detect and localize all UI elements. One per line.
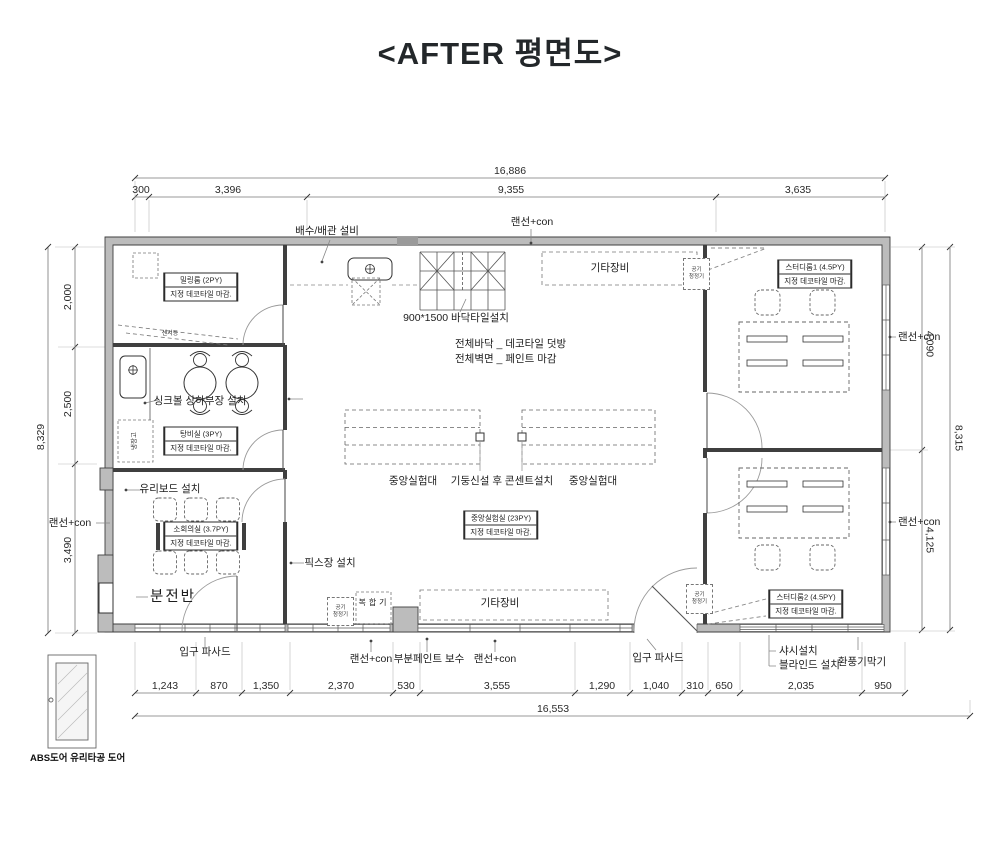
roombox-study2: 스터디룸2 (4.5PY) 지정 데코타일 마감. [768,590,843,619]
air-purifier-box-bottom-right: 공기 청정기 [686,584,713,614]
label-bench-right: 중앙실험대 [569,476,617,487]
air-purifier-box-bottom-left: 공기 청정기 [327,597,354,626]
air-purifier-label: 청정기 [692,599,707,606]
room-finish: 지정 데코타일 마감. [779,275,850,288]
label-abs-door: ABS도어 유리타공 도어 [30,750,125,764]
room-name: 중앙실험실 (23PY) [465,512,536,526]
roombox-milling: 밀링룸 (2PY) 지정 데코타일 마감. [163,273,238,302]
meeting-table-bar [242,523,246,550]
dim-top-total: 16,886 [494,166,526,177]
leader-dots [125,242,892,643]
dim-bottom-1: 870 [210,681,228,692]
dim-bottom-9: 650 [715,681,733,692]
roombox-meeting: 소회의실 (3.7PY) 지정 데코타일 마감. [163,522,238,551]
room-name: 소회의실 (3.7PY) [165,523,236,537]
dim-bottom-7: 1,040 [643,681,669,692]
label-facade-left: 입구 파사드 [179,647,230,658]
room-name: 스터디룸2 (4.5PY) [770,591,841,605]
label-lan-right1: 랜선+con [898,332,940,343]
room-finish: 지정 데코타일 마감. [165,537,236,550]
room-finish: 지정 데코타일 마감. [165,442,236,455]
label-fix: 픽스장 설치 [304,558,355,569]
dim-top-1: 3,396 [215,185,241,196]
abs-door-drawing [48,655,96,748]
dim-top-2: 9,355 [498,185,524,196]
label-blind: 블라인드 설치 [779,660,840,671]
dim-bottom-11: 950 [874,681,892,692]
room-finish: 지정 데코타일 마감. [165,288,236,301]
meeting-table-bar [156,523,160,550]
label-lan-bottom1: 랜선+con [350,654,392,665]
study-furniture [708,248,849,624]
label-drain: 배수/배관 설비 [295,226,359,237]
label-sash: 샤시설치 [779,646,818,657]
dim-bottom-8: 310 [686,681,704,692]
dim-bottom-10: 2,035 [788,681,814,692]
roombox-study1: 스터디룸1 (4.5PY) 지정 데코타일 마감. [777,260,852,289]
air-purifier-label: 청정기 [333,612,348,619]
roombox-pantry: 탕비실 (3PY) 지정 데코타일 마감. [163,427,238,456]
dim-bottom-4: 530 [397,681,415,692]
dim-left-total: 8,329 [36,424,47,450]
label-glassboard: 유리보드 설치 [140,484,201,495]
label-equip-top: 기타장비 [591,263,630,274]
demolition-dashes [708,248,767,624]
dim-right-total: 8,315 [953,425,964,451]
door-handle [49,698,53,702]
entrance-opening [634,624,697,634]
dim-bottom-total: 16,553 [537,704,569,715]
dim-bottom-3: 2,370 [328,681,354,692]
wall-hatch [397,237,418,246]
dim-top-3: 3,635 [785,185,811,196]
label-column: 기둥신설 후 콘센트설치 [451,476,553,487]
label-fridge: 냉장고 [132,432,139,450]
label-lan-top: 랜선+con [511,217,553,228]
column [518,433,526,441]
dim-left-2: 3,490 [63,537,74,563]
distribution-panel [99,583,113,613]
room-name: 스터디룸1 (4.5PY) [779,261,850,275]
room-name: 탕비실 (3PY) [165,428,236,442]
roombox-lab: 중앙실험실 (23PY) 지정 데코타일 마감. [463,511,538,540]
label-lan-bottom2: 랜선+con [474,654,516,665]
column [476,433,484,441]
dim-bottom-6: 1,290 [589,681,615,692]
dim-right-1: 4,125 [924,527,935,553]
label-wall-finish: 전체벽면 _ 페인트 마감 [455,354,557,365]
room-name: 밀링룸 (2PY) [165,274,236,288]
label-sink: 싱크볼 상하부장 설치 [154,396,247,407]
wall-stub [100,468,113,490]
label-floor-tile: 900*1500 바닥타일설치 [403,313,509,324]
label-copier: 복합기 [358,599,389,607]
air-purifier-label: 공기 [335,605,345,612]
room-finish: 지정 데코타일 마감. [770,605,841,618]
label-equip-bottom: 기타장비 [481,598,520,609]
pantry-sink [120,356,146,398]
dim-bottom-5: 3,555 [484,681,510,692]
dim-top-0: 300 [132,185,150,196]
room-finish: 지정 데코타일 마감. [465,526,536,539]
lab-benches [345,410,655,464]
tile-grid [420,252,505,310]
copier-box [356,592,391,624]
label-vent: 환풍기막기 [838,657,886,668]
vestibule-wall [393,607,418,632]
label-sensor: 센서등 [162,331,179,337]
floor-plan-drawing [0,0,1000,854]
dim-left-1: 2,500 [63,391,74,417]
page-title: <AFTER 평면도> [0,28,1000,73]
label-panel: 분전반 [150,590,196,605]
air-purifier-label: 공기 [691,267,701,274]
dim-bottom-2: 1,350 [253,681,279,692]
air-purifier-label: 공기 [694,592,704,599]
dim-bottom-0: 1,243 [152,681,178,692]
tile-square-dashed [352,278,380,305]
label-lan-left: 랜선+con [49,518,91,529]
air-purifier-label: 청정기 [689,274,704,281]
label-lan-right2: 랜선+con [898,517,940,528]
dim-left-0: 2,000 [63,284,74,310]
air-purifier-box-top: 공기 청정기 [683,258,710,290]
label-facade-right: 입구 파사드 [632,653,683,664]
floor-plan-page: <AFTER 평면도> 16,886 300 3,396 9,355 3,635… [0,0,1000,854]
label-bench-left: 중앙실험대 [389,476,437,487]
label-floor-finish: 전체바닥 _ 데코타일 덧방 [455,339,566,350]
label-paint-repair: 부분페인트 보수 [394,654,465,665]
